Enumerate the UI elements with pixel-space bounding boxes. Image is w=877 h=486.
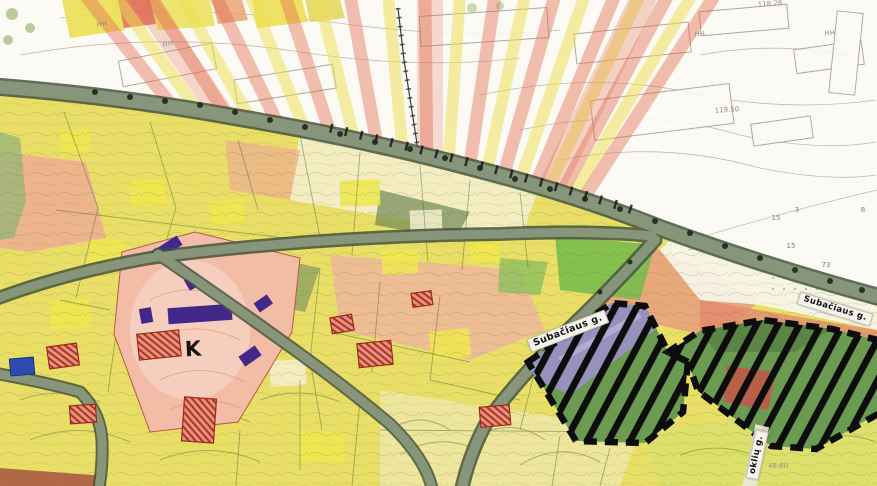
scanned-map: Subačiaus g. Subačiaus g. oklių g. K 118… — [0, 0, 877, 486]
parcel-number-5: 8 — [861, 206, 865, 214]
elevation-bottom-right: 48.60 — [768, 462, 788, 470]
parcel-number-1: 3 — [795, 206, 799, 214]
height-mark-4: HH — [824, 29, 835, 38]
parcel-number-3: 15 — [787, 242, 796, 250]
zoning-map-svg — [0, 0, 877, 486]
parcel-number-4: 73 — [822, 261, 831, 269]
elevation-upper-right: 119.50 — [715, 105, 740, 115]
blue-building — [9, 357, 34, 376]
parcel-number-2: 15 — [772, 214, 781, 222]
height-mark-3: HH — [694, 30, 705, 39]
district-letter-k: K — [184, 337, 202, 362]
